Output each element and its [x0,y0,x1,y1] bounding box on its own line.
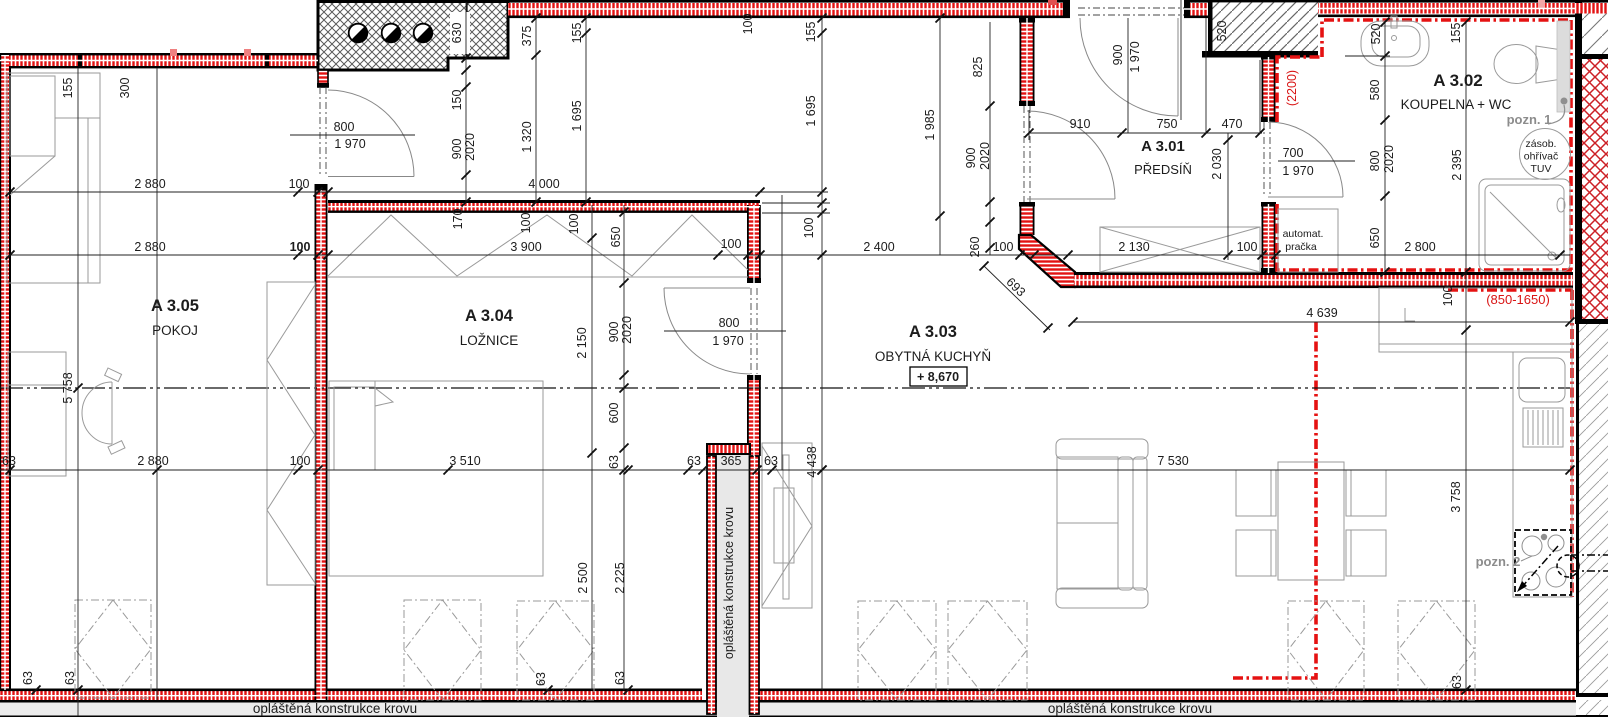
svg-text:100: 100 [993,240,1014,254]
svg-text:910: 910 [1070,117,1091,131]
svg-text:2020: 2020 [463,133,477,161]
svg-text:1 970: 1 970 [1282,164,1313,178]
svg-text:PŘEDSÍŇ: PŘEDSÍŇ [1134,162,1192,177]
svg-text:opláštěná konstrukce krovu: opláštěná konstrukce krovu [722,507,736,659]
svg-text:LOŽNICE: LOŽNICE [460,333,519,348]
svg-text:OBYTNÁ KUCHYŇ: OBYTNÁ KUCHYŇ [875,349,991,364]
svg-text:1 970: 1 970 [334,137,365,151]
svg-text:zásob.: zásob. [1526,138,1557,150]
svg-text:470: 470 [1222,117,1243,131]
svg-text:100: 100 [290,454,311,468]
svg-text:900: 900 [450,139,464,160]
svg-text:3 900: 3 900 [510,240,541,254]
svg-text:A 3.04: A 3.04 [465,307,514,325]
svg-text:375: 375 [520,26,534,47]
svg-text:63: 63 [1450,675,1464,689]
svg-text:580: 580 [1368,80,1382,101]
svg-text:63: 63 [764,454,778,468]
svg-text:150: 150 [450,90,464,111]
svg-text:365: 365 [721,454,742,468]
svg-text:1 970: 1 970 [1128,41,1142,72]
svg-text:155: 155 [61,78,75,99]
svg-text:automat.: automat. [1283,228,1324,240]
svg-text:2 880: 2 880 [134,240,165,254]
svg-text:260: 260 [968,237,982,258]
svg-text:A 3.01: A 3.01 [1141,138,1185,155]
svg-text:2 500: 2 500 [576,562,590,593]
svg-text:(850-1650): (850-1650) [1486,292,1550,307]
svg-text:750: 750 [1157,117,1178,131]
svg-text:300: 300 [118,78,132,99]
svg-text:7 530: 7 530 [1157,454,1188,468]
svg-text:520: 520 [1369,24,1383,45]
svg-text:900: 900 [1111,45,1125,66]
svg-text:2 880: 2 880 [137,454,168,468]
svg-text:2 130: 2 130 [1118,240,1149,254]
svg-text:2 400: 2 400 [863,240,894,254]
svg-text:100: 100 [290,240,311,254]
svg-text:1 970: 1 970 [712,334,743,348]
svg-text:630: 630 [450,23,464,44]
svg-text:800: 800 [1368,151,1382,172]
svg-text:+ 8,670: + 8,670 [917,370,959,384]
svg-text:63: 63 [613,671,627,685]
svg-text:63: 63 [21,671,35,685]
svg-text:(2200): (2200) [1285,70,1299,106]
svg-text:KOUPELNA + WC: KOUPELNA + WC [1401,97,1512,112]
svg-text:900: 900 [607,322,621,343]
svg-text:A 3.02: A 3.02 [1433,71,1482,90]
svg-text:4 639: 4 639 [1306,306,1337,320]
svg-text:A 3.05: A 3.05 [151,297,199,315]
svg-text:63: 63 [607,455,621,469]
svg-text:pozn. 2: pozn. 2 [1476,554,1521,569]
svg-text:63: 63 [687,454,701,468]
svg-text:1 695: 1 695 [570,100,584,131]
svg-text:2020: 2020 [978,142,992,170]
svg-text:4 000: 4 000 [528,177,559,191]
svg-text:650: 650 [609,227,623,248]
svg-text:2 880: 2 880 [134,177,165,191]
svg-text:TUV: TUV [1531,163,1552,175]
svg-text:2 030: 2 030 [1210,148,1224,179]
svg-text:100: 100 [519,213,533,234]
svg-text:5 758: 5 758 [61,372,75,403]
svg-text:2 150: 2 150 [575,327,589,358]
svg-text:ohřívač: ohřívač [1524,151,1558,163]
svg-text:2 800: 2 800 [1404,240,1435,254]
svg-text:pozn. 1: pozn. 1 [1507,112,1552,127]
svg-text:63: 63 [63,671,77,685]
svg-text:opláštěná konstrukce krovu: opláštěná konstrukce krovu [1048,701,1212,716]
svg-text:100: 100 [1441,286,1455,307]
svg-text:63: 63 [2,454,16,468]
svg-text:2020: 2020 [1382,145,1396,173]
svg-text:155: 155 [570,23,584,44]
svg-text:800: 800 [719,316,740,330]
svg-text:825: 825 [971,57,985,78]
svg-text:1 695: 1 695 [804,95,818,126]
svg-text:2020: 2020 [620,316,634,344]
svg-text:100: 100 [802,218,816,239]
svg-text:170: 170 [451,209,465,230]
svg-text:100: 100 [1237,240,1258,254]
svg-text:63: 63 [534,672,548,686]
svg-text:100: 100 [289,177,310,191]
svg-text:POKOJ: POKOJ [152,323,198,338]
svg-text:100: 100 [741,14,755,35]
svg-text:155: 155 [804,22,818,43]
svg-text:4 438: 4 438 [805,446,819,477]
svg-text:2 395: 2 395 [1450,149,1464,180]
svg-text:520: 520 [1215,21,1229,42]
svg-text:700: 700 [1283,146,1304,160]
svg-text:1 985: 1 985 [923,109,937,140]
svg-text:100: 100 [721,237,742,251]
svg-text:600: 600 [607,403,621,424]
svg-text:pračka: pračka [1285,241,1317,253]
svg-text:3 758: 3 758 [1449,481,1463,512]
svg-text:3 510: 3 510 [449,454,480,468]
svg-text:900: 900 [964,148,978,169]
svg-text:A 3.03: A 3.03 [909,323,957,341]
svg-text:2 225: 2 225 [613,562,627,593]
svg-text:100: 100 [567,214,581,235]
svg-text:800: 800 [334,120,355,134]
svg-text:opláštěná konstrukce krovu: opláštěná konstrukce krovu [253,701,417,716]
svg-text:650: 650 [1368,228,1382,249]
svg-text:155: 155 [1449,23,1463,44]
svg-text:1 320: 1 320 [520,121,534,152]
